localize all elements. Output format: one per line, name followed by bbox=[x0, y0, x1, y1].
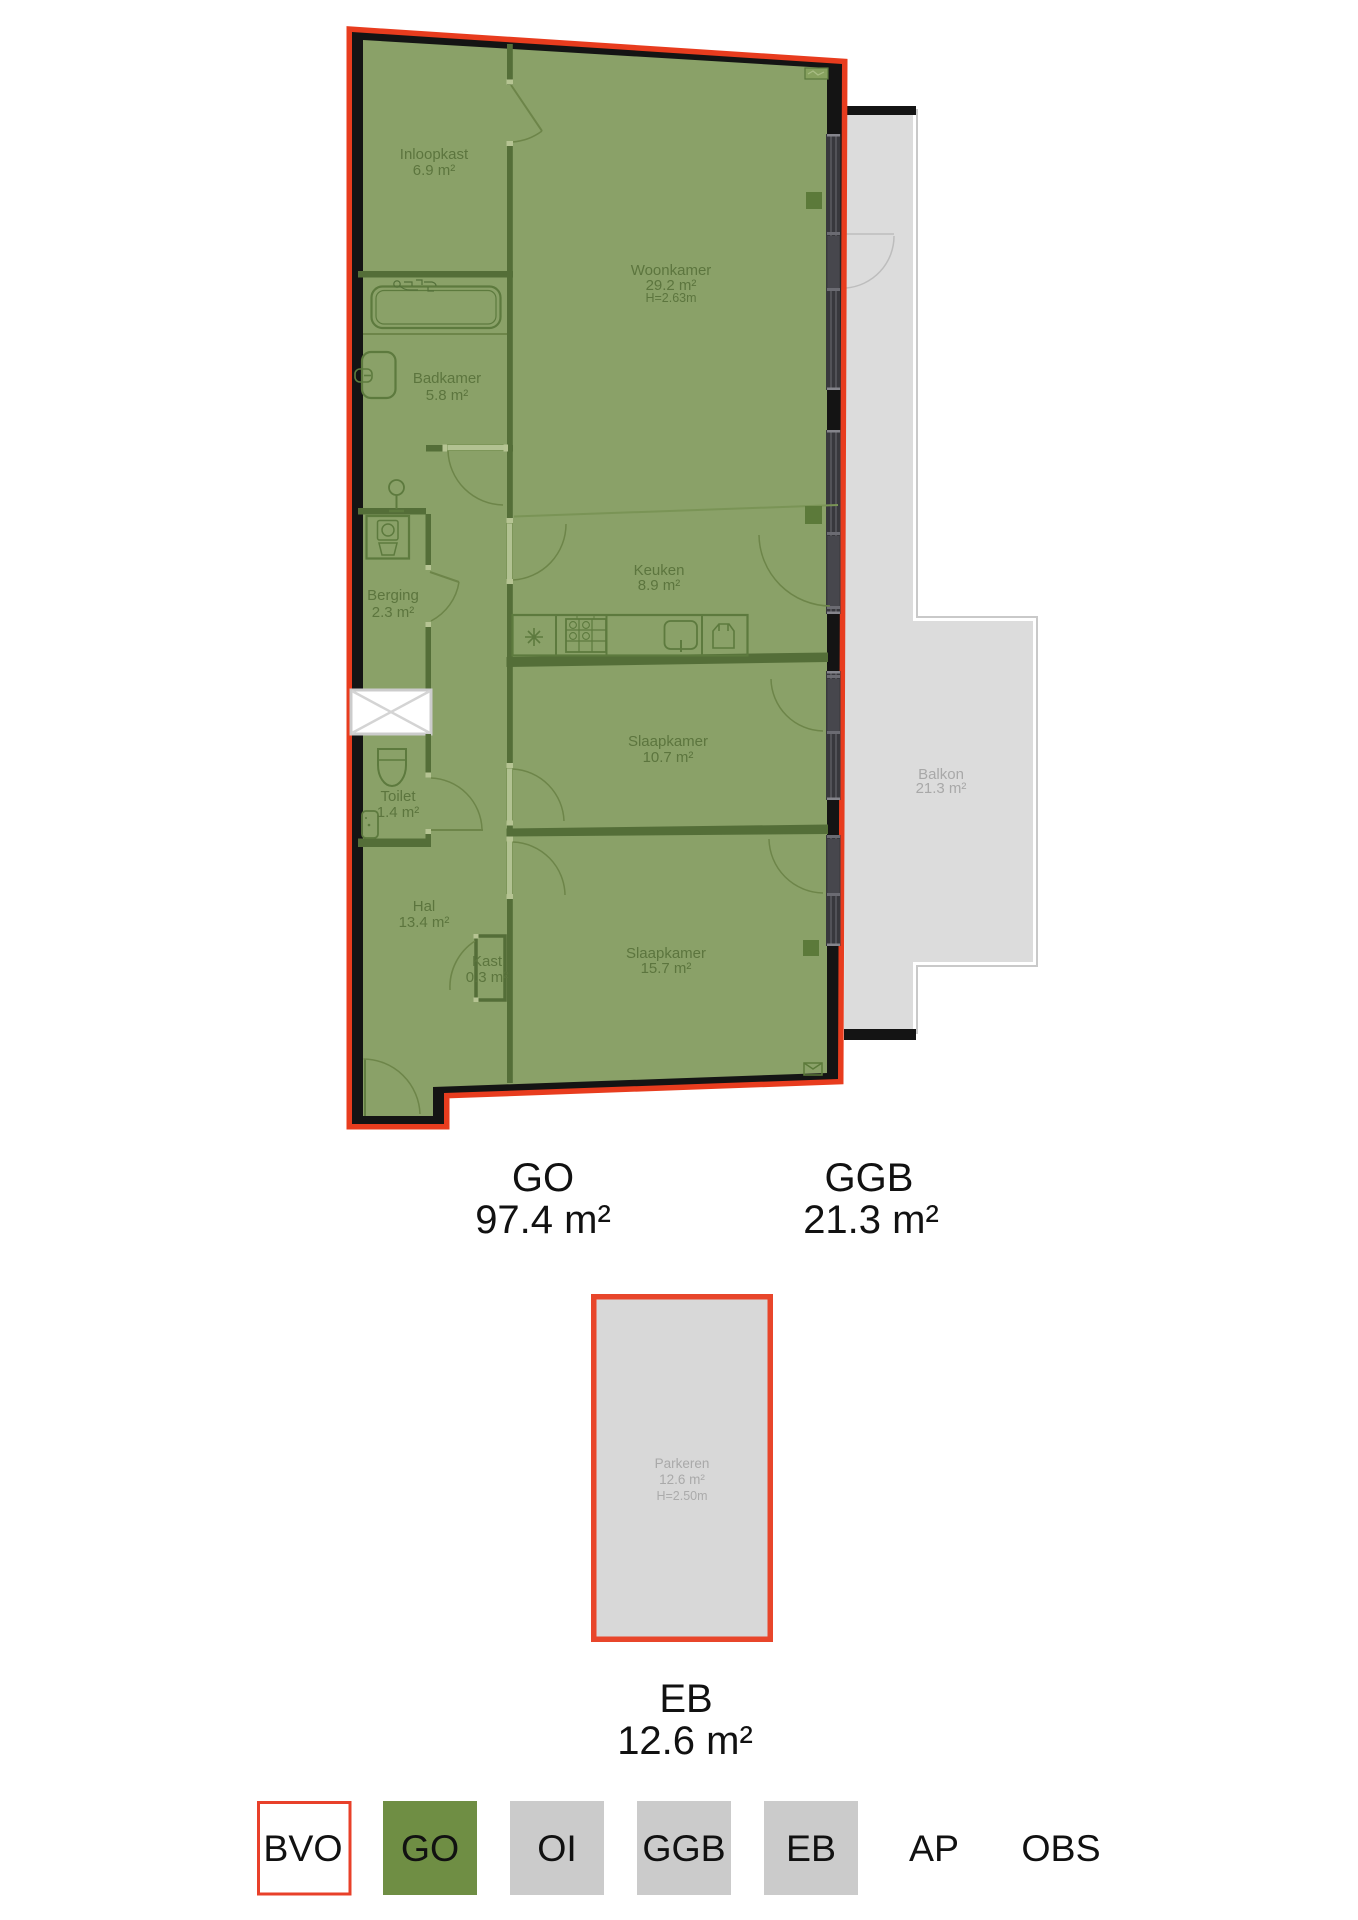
svg-text:10.7 m²: 10.7 m² bbox=[643, 749, 694, 766]
svg-text:AP: AP bbox=[909, 1827, 959, 1869]
svg-text:Parkeren: Parkeren bbox=[655, 1456, 710, 1471]
svg-text:OI: OI bbox=[537, 1827, 577, 1869]
svg-text:GO: GO bbox=[512, 1156, 574, 1200]
svg-text:12.6 m²: 12.6 m² bbox=[659, 1472, 705, 1487]
svg-text:21.3 m²: 21.3 m² bbox=[803, 1198, 939, 1242]
svg-text:1.4 m²: 1.4 m² bbox=[377, 804, 420, 821]
svg-text:H=2.63m: H=2.63m bbox=[645, 291, 696, 305]
svg-text:GGB: GGB bbox=[642, 1827, 725, 1869]
svg-text:Berging: Berging bbox=[367, 587, 419, 604]
svg-text:Slaapkamer: Slaapkamer bbox=[628, 733, 708, 750]
svg-text:0.3 m²: 0.3 m² bbox=[466, 969, 509, 986]
svg-text:OBS: OBS bbox=[1021, 1827, 1100, 1869]
svg-text:GO: GO bbox=[401, 1827, 459, 1869]
svg-text:13.4 m²: 13.4 m² bbox=[399, 914, 450, 931]
svg-text:EB: EB bbox=[659, 1677, 712, 1721]
svg-text:12.6 m²: 12.6 m² bbox=[617, 1719, 753, 1763]
svg-text:97.4 m²: 97.4 m² bbox=[475, 1198, 611, 1242]
svg-text:5.8 m²: 5.8 m² bbox=[426, 387, 469, 404]
svg-text:Hal: Hal bbox=[413, 898, 436, 915]
svg-text:Toilet: Toilet bbox=[380, 788, 416, 805]
svg-text:Badkamer: Badkamer bbox=[413, 370, 481, 387]
svg-text:15.7 m²: 15.7 m² bbox=[641, 960, 692, 977]
svg-text:GGB: GGB bbox=[825, 1156, 914, 1200]
svg-text:BVO: BVO bbox=[263, 1827, 342, 1869]
svg-text:6.9 m²: 6.9 m² bbox=[413, 162, 456, 179]
svg-text:8.9 m²: 8.9 m² bbox=[638, 577, 681, 594]
svg-text:EB: EB bbox=[786, 1827, 836, 1869]
svg-text:Inloopkast: Inloopkast bbox=[400, 146, 469, 163]
svg-text:H=2.50m: H=2.50m bbox=[656, 1489, 707, 1503]
svg-text:2.3 m²: 2.3 m² bbox=[372, 604, 415, 621]
svg-text:21.3 m²: 21.3 m² bbox=[916, 780, 967, 797]
svg-text:Kast: Kast bbox=[472, 953, 503, 970]
